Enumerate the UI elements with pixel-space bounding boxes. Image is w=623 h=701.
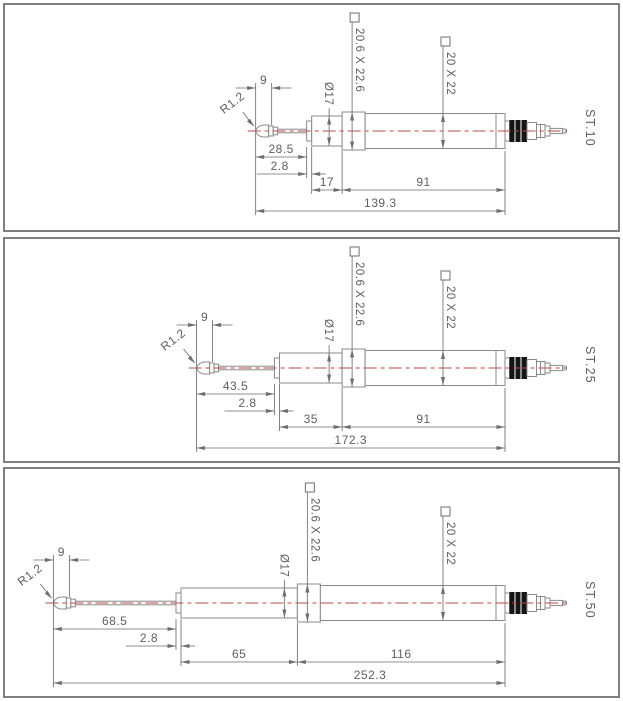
radius-arrow [45, 591, 52, 599]
dim-arrow [256, 209, 265, 213]
total-length-label: 252.3 [354, 668, 387, 682]
tip-ridge [210, 363, 215, 373]
square-symbol [441, 37, 450, 46]
dim-arrow [181, 644, 190, 648]
flange-section-label: 20.6 X 22.6 [353, 28, 365, 92]
body-length-label: 91 [416, 175, 430, 189]
radius-arrow [247, 119, 254, 127]
dim-arrow [298, 172, 307, 176]
dim-arrow [181, 660, 190, 664]
panel-st10-drawing: 9R1.228.52.81791139.3Ø1720.6 X 22.620 X … [4, 4, 619, 231]
tip-ridge [66, 598, 71, 608]
dim-arrow [53, 627, 62, 631]
panel-border-st25 [4, 238, 619, 462]
drawing-sheet: 9R1.228.52.81791139.3Ø1720.6 X 22.620 X … [0, 0, 623, 701]
dim-arrow [497, 209, 506, 213]
dim-arrow [280, 409, 289, 413]
technical-drawing-svg: 9R1.228.52.81791139.3Ø1720.6 X 22.620 X … [0, 0, 623, 701]
dimensions-st25: 9R1.243.52.83591172.3Ø1720.6 X 22.620 X … [158, 247, 505, 452]
dim-arrow [280, 425, 289, 429]
dim-arrow [197, 446, 206, 450]
neck-length-label: 2.8 [140, 631, 158, 645]
panel-st25-drawing: 9R1.243.52.83591172.3Ø1720.6 X 22.620 X … [4, 238, 619, 462]
square-symbol [350, 13, 359, 22]
dim-arrow [266, 392, 275, 396]
square-symbol [305, 483, 314, 492]
body-length-label: 91 [416, 412, 430, 426]
dim-arrow [197, 392, 206, 396]
flange-section-label: 20.6 X 22.6 [353, 262, 365, 326]
spindle-length-label: 28.5 [268, 142, 293, 156]
collar-dia-label: Ø17 [322, 82, 334, 105]
dim-arrow [497, 660, 506, 664]
dim-arrow [497, 446, 506, 450]
total-length-label: 172.3 [335, 433, 368, 447]
dim-arrow [256, 155, 265, 159]
square-symbol [441, 507, 450, 516]
dim-arrow [342, 425, 351, 429]
dim-arrow [334, 188, 343, 192]
dim-arrow [247, 86, 256, 90]
dim-arrow [342, 188, 351, 192]
model-label-st10: ST.10 [583, 109, 597, 147]
dim-arrow [497, 681, 506, 685]
collar-length-label: 65 [232, 647, 246, 661]
collar-length-label: 35 [304, 412, 318, 426]
dim-arrow [297, 660, 306, 664]
dim-arrow [266, 409, 275, 413]
square-symbol [350, 247, 359, 256]
body-length-label: 116 [391, 647, 412, 661]
panel-st50-drawing: 9R1.268.52.865116252.3Ø1720.6 X 22.620 X… [4, 468, 619, 697]
tip-ridge [269, 126, 274, 136]
dim-arrow [289, 660, 298, 664]
total-length-label: 139.3 [364, 196, 397, 210]
body-section-label: 20 X 22 [444, 522, 456, 565]
dim-arrow [53, 681, 62, 685]
dim-arrow [334, 425, 343, 429]
dim-arrow [298, 155, 307, 159]
body-section-label: 20 X 22 [444, 52, 456, 95]
tip-width-label: 9 [201, 310, 208, 324]
spindle-length-label: 68.5 [102, 614, 127, 628]
dim-arrow [45, 558, 54, 562]
dim-arrow [188, 323, 197, 327]
collar-dia-label: Ø17 [322, 319, 334, 342]
model-label-st50: ST.50 [583, 581, 597, 619]
dim-arrow [69, 558, 78, 562]
radius-arrow [188, 356, 195, 364]
tip-width-label: 9 [58, 545, 65, 559]
dim-arrow [213, 323, 222, 327]
dim-arrow [168, 627, 177, 631]
spindle-length-label: 43.5 [223, 379, 248, 393]
dim-arrow [168, 644, 177, 648]
tip-width-label: 9 [260, 73, 267, 87]
dim-arrow [272, 86, 281, 90]
flange-section-label: 20.6 X 22.6 [308, 498, 320, 562]
dim-arrow [497, 188, 506, 192]
body-section-label: 20 X 22 [444, 286, 456, 329]
neck-length-label: 2.8 [271, 159, 289, 173]
neck-length-label: 2.8 [238, 396, 256, 410]
collar-length-label: 17 [320, 175, 334, 189]
dim-arrow [497, 425, 506, 429]
square-symbol [441, 271, 450, 280]
collar-dia-label: Ø17 [277, 554, 289, 577]
model-label-st25: ST.25 [583, 346, 597, 384]
